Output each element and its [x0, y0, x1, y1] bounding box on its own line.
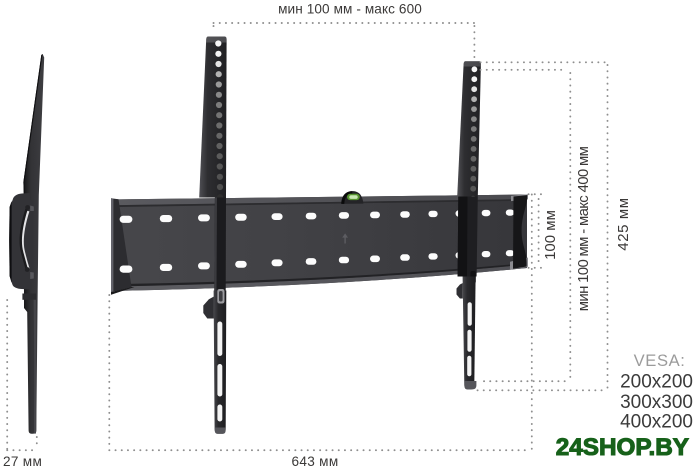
svg-text:100 мм: 100 мм — [542, 210, 559, 260]
svg-text:400x200: 400x200 — [620, 411, 693, 432]
svg-text:24SHOP.BY: 24SHOP.BY — [556, 434, 689, 461]
svg-text:VESA:: VESA: — [634, 351, 686, 370]
svg-text:300x300: 300x300 — [620, 392, 693, 413]
svg-text:мин 100 мм - макс 600: мин 100 мм - макс 600 — [278, 2, 422, 17]
svg-text:200x200: 200x200 — [620, 372, 693, 393]
svg-text:мин 100 мм - макс 400 мм: мин 100 мм - макс 400 мм — [575, 146, 592, 311]
svg-text:27 мм: 27 мм — [3, 454, 42, 467]
svg-text:425 мм: 425 мм — [615, 197, 632, 250]
svg-text:643 мм: 643 мм — [292, 454, 339, 467]
